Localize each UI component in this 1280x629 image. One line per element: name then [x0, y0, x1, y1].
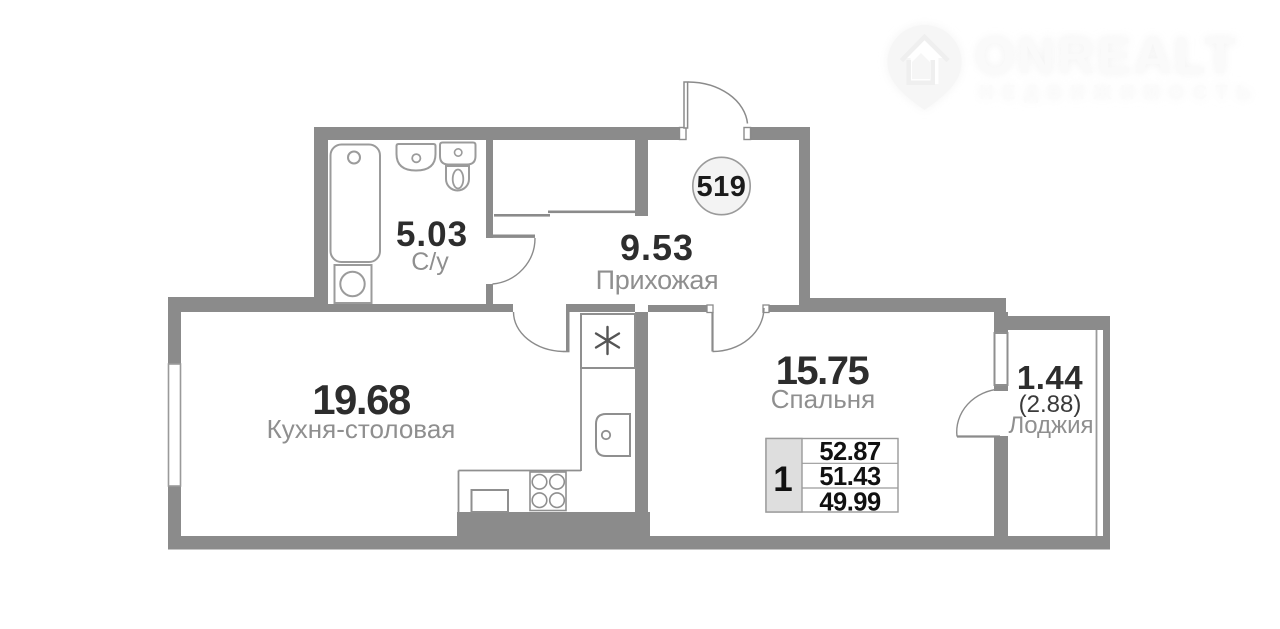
svg-text:Кухня-столовая: Кухня-столовая — [267, 414, 456, 444]
svg-text:С/у: С/у — [411, 248, 449, 276]
svg-text:52.87: 52.87 — [819, 438, 881, 466]
svg-text:Лоджия: Лоджия — [1008, 412, 1093, 439]
svg-text:ONREALT: ONREALT — [975, 27, 1239, 84]
svg-text:49.99: 49.99 — [819, 489, 881, 517]
svg-text:Спальня: Спальня — [771, 384, 875, 414]
svg-text:9.53: 9.53 — [620, 227, 694, 268]
svg-text:1: 1 — [773, 460, 792, 499]
svg-text:НЕДВИЖИМОСТЬ: НЕДВИЖИМОСТЬ — [979, 82, 1259, 104]
svg-text:51.43: 51.43 — [819, 463, 881, 491]
svg-text:Прихожая: Прихожая — [596, 265, 719, 295]
svg-text:519: 519 — [697, 171, 747, 203]
